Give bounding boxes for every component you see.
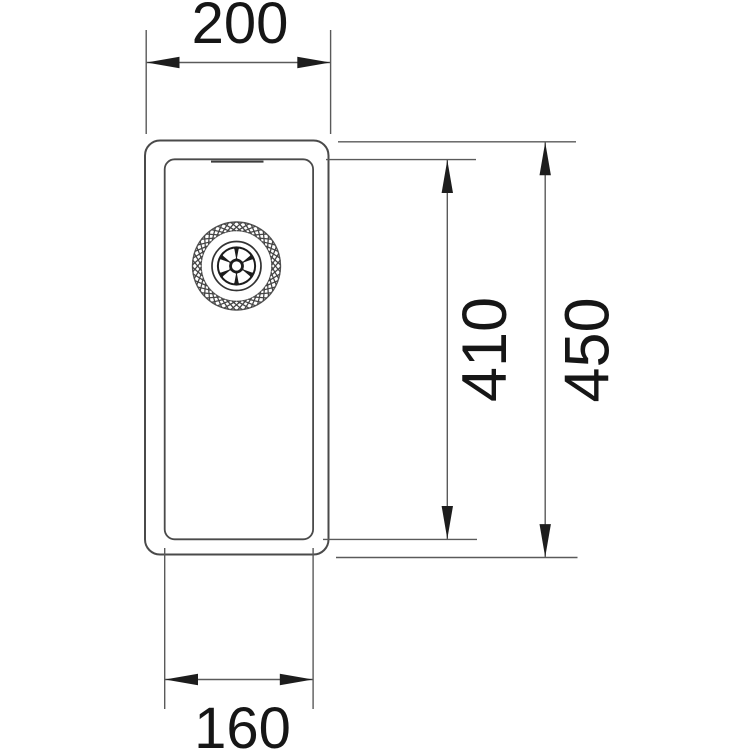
svg-text:160: 160 — [194, 696, 291, 750]
svg-text:450: 450 — [553, 297, 623, 402]
svg-text:410: 410 — [450, 297, 520, 402]
svg-text:200: 200 — [192, 0, 289, 56]
